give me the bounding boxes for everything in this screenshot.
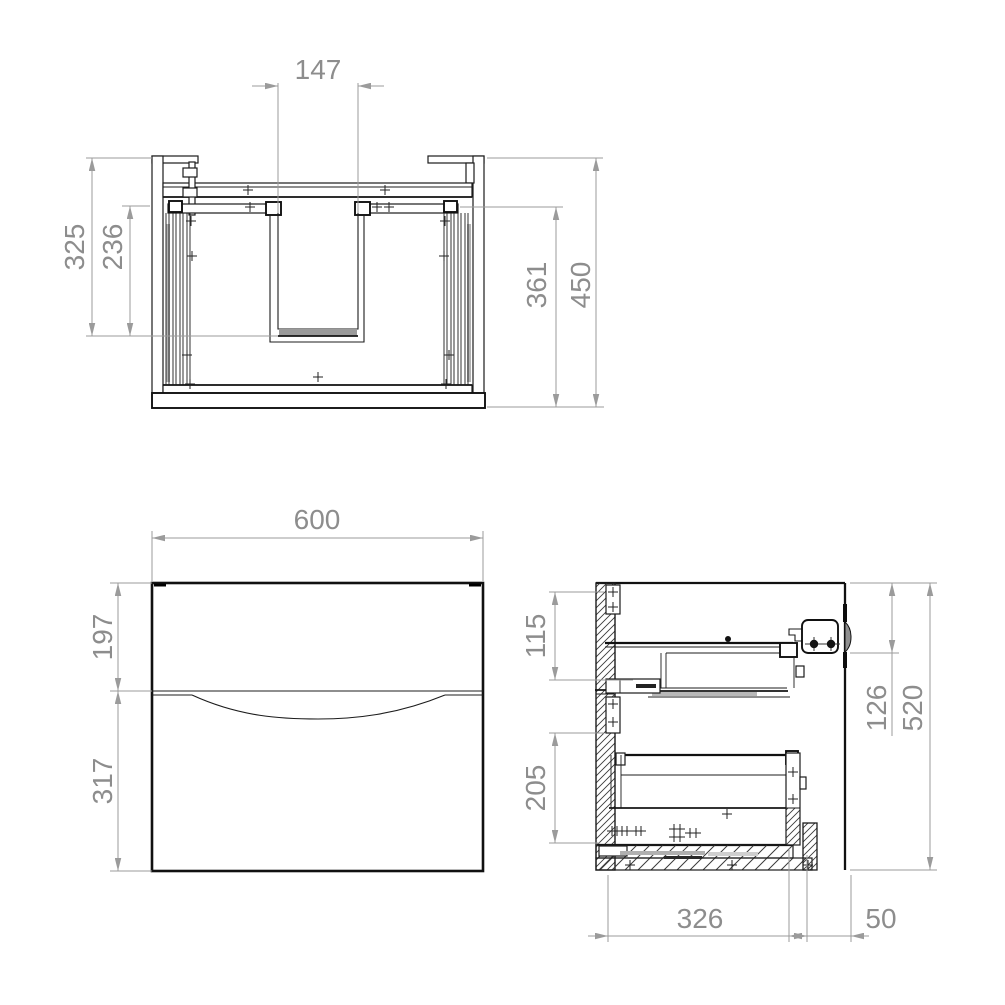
dim-126-label: 126 (861, 685, 892, 732)
wall-bracket-body (802, 620, 838, 653)
dim-326-label: 326 (677, 903, 724, 934)
back-wall-tab (800, 777, 806, 789)
cutout-bottom-shade (279, 329, 357, 336)
slide-rail-strip (652, 692, 757, 696)
back-tab (796, 666, 804, 677)
dim-325-label: 325 (59, 224, 90, 271)
rail-strip-1 (620, 851, 705, 855)
lower-panel-section (596, 858, 812, 870)
dim-450-label: 450 (565, 262, 596, 309)
technical-drawing: 147 325 236 361 450 (0, 0, 1005, 1005)
dim-147-label: 147 (295, 54, 342, 85)
drawer-back-top (780, 643, 797, 657)
dim-50-label: 50 (865, 903, 896, 934)
front-view-outline (152, 583, 483, 871)
rail-strip-2 (664, 856, 702, 859)
dim-205-label: 205 (520, 765, 551, 812)
dim-600-label: 600 (294, 504, 341, 535)
dim-115-label: 115 (520, 614, 551, 659)
rail-strip-3 (708, 852, 758, 856)
dim-236-label: 236 (97, 224, 128, 271)
dim-520-label: 520 (897, 685, 928, 732)
slide-dark-strip (636, 684, 656, 688)
dim-361-label: 361 (521, 262, 552, 309)
back-panel-section (803, 823, 817, 870)
fixing-dot (725, 636, 731, 642)
dim-317-label: 317 (87, 758, 118, 805)
drawing-canvas: 147 325 236 361 450 (0, 0, 1005, 1005)
drawer-back-wall-section (786, 808, 800, 845)
dim-197-label: 197 (87, 614, 118, 661)
